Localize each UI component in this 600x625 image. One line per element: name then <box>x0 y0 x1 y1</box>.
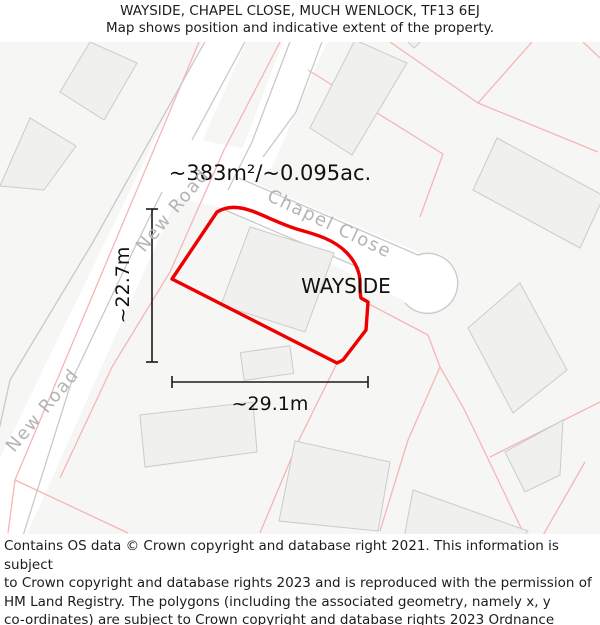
page-title: WAYSIDE, CHAPEL CLOSE, MUCH WENLOCK, TF1… <box>0 3 600 20</box>
map-container: ~383m²/~0.095ac. WAYSIDE ~22.7m ~29.1m C… <box>0 42 600 534</box>
map-canvas: ~383m²/~0.095ac. WAYSIDE ~22.7m ~29.1m C… <box>0 42 600 534</box>
footer: Contains OS data © Crown copyright and d… <box>0 534 600 625</box>
property-map-page: WAYSIDE, CHAPEL CLOSE, MUCH WENLOCK, TF1… <box>0 0 600 625</box>
property-name-label: WAYSIDE <box>301 274 391 298</box>
copyright-text: Contains OS data © Crown copyright and d… <box>4 537 596 625</box>
page-subtitle: Map shows position and indicative extent… <box>0 20 600 37</box>
height-dimension-label: ~22.7m <box>112 247 134 324</box>
width-dimension-label: ~29.1m <box>232 393 309 415</box>
header: WAYSIDE, CHAPEL CLOSE, MUCH WENLOCK, TF1… <box>0 0 600 42</box>
